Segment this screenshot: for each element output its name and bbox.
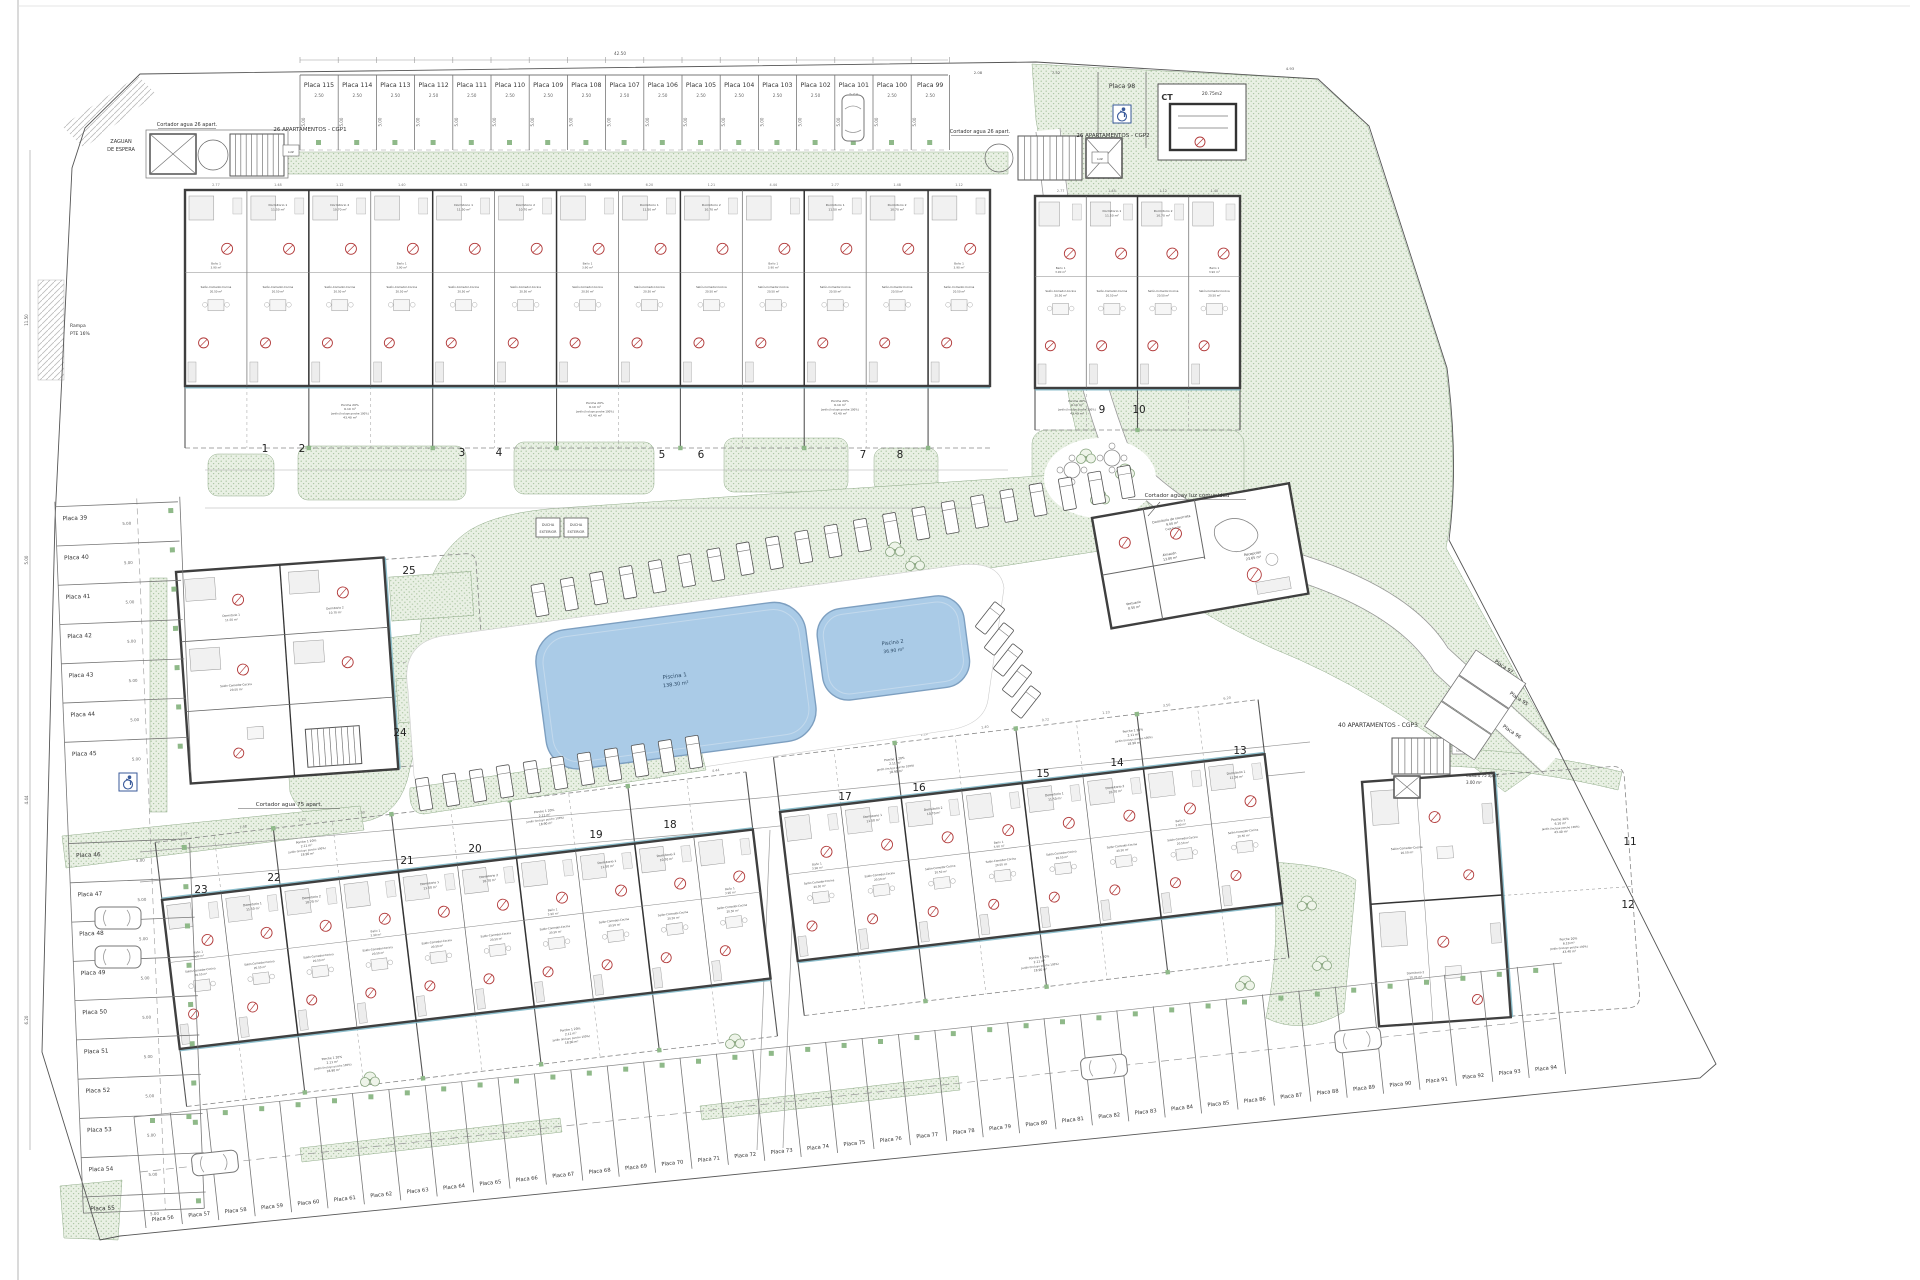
parking-dim: 5.00 <box>759 117 764 126</box>
ct-area-label: 20.75m2 <box>1202 91 1222 97</box>
planter-marker <box>173 626 178 631</box>
pool-2: Piscina 236.90 m² <box>814 593 973 704</box>
wardrobe-furniture <box>563 859 574 876</box>
wardrobe-furniture <box>1226 204 1235 220</box>
garden-label: 43.40 m² <box>1070 412 1084 416</box>
room-label: Salón-Comedor-Cocina <box>820 285 851 289</box>
parking-dim: 5.00 <box>912 117 917 126</box>
parking-spot-label: Placa 104 <box>724 82 754 89</box>
plan-shape <box>1057 467 1063 473</box>
staircase <box>1392 738 1450 774</box>
tree-icon <box>361 1072 380 1087</box>
parking-dim: 2.50 <box>887 93 897 98</box>
plan-shape <box>914 563 916 565</box>
planter-marker <box>550 1075 555 1080</box>
bed-furniture <box>746 196 771 220</box>
planter-marker <box>889 140 894 145</box>
planter-marker <box>842 1043 847 1048</box>
parking-spot-label: Placa 71 <box>698 1156 721 1164</box>
table-furniture <box>332 300 348 311</box>
wardrobe-furniture <box>790 198 799 214</box>
plan-shape <box>734 1041 736 1043</box>
room-label: Salón-Comedor-Cocina <box>634 285 665 289</box>
parking-dim: 5.00 <box>645 117 650 126</box>
garden-label: 18.90 m² <box>301 851 316 857</box>
kitchen-furniture <box>683 362 691 382</box>
planter-marker <box>736 140 741 145</box>
parking-spot-label: Placa 41 <box>66 594 91 601</box>
unit-number: 21 <box>400 855 413 867</box>
gate-planter <box>926 446 930 450</box>
parking-spot-label: Placa 47 <box>78 892 103 899</box>
plan-shape <box>361 1078 370 1087</box>
table-furniture <box>1176 848 1193 861</box>
planter-marker <box>623 1067 628 1072</box>
parking-spot-label: Placa 44 <box>70 712 95 719</box>
parking-dim: 5.00 <box>145 1093 155 1098</box>
dim-label: 1.12 <box>1159 189 1167 193</box>
room-label: Salón-Comedor-Cocina <box>882 285 913 289</box>
parking-dim: 2.50 <box>811 93 821 98</box>
parking-dim: 2.50 <box>658 93 668 98</box>
dim-label: 1.21 <box>708 183 716 187</box>
parking-spot-label: Placa 55 <box>90 1206 115 1213</box>
wardrobe-furniture <box>852 198 861 214</box>
green-garden-patch <box>514 442 654 494</box>
parking-spot-label: Placa 49 <box>81 970 106 977</box>
staircase <box>1018 136 1082 180</box>
parking-dim: 5.00 <box>125 599 135 604</box>
water-cutoff-label: Cortador aguay luz comunidad <box>1145 493 1230 499</box>
car-icon <box>1334 1027 1382 1054</box>
wardrobe-furniture <box>326 887 337 904</box>
text-label: EXTERIOR <box>540 530 558 534</box>
planter-marker <box>660 1063 665 1068</box>
parking-separator <box>57 541 180 546</box>
planter-marker <box>660 140 665 145</box>
garden-wall <box>1258 700 1265 755</box>
parking-dim: 2.50 <box>353 93 363 98</box>
parking-spot-label: Placa 65 <box>479 1179 502 1187</box>
parking-spot-label: Placa 61 <box>334 1195 357 1203</box>
tree-icon <box>1236 976 1255 991</box>
parking-dim: 5.00 <box>130 717 140 722</box>
table-furniture <box>270 300 286 311</box>
plan-shape <box>1502 886 1632 895</box>
room-area: 20.50 m² <box>458 290 470 294</box>
kitchen-furniture <box>1192 364 1200 384</box>
plan-shape <box>726 1040 735 1049</box>
parking-spot-label: Placa 72 <box>734 1152 757 1160</box>
unit-number: 17 <box>838 791 851 803</box>
unit-number: 5 <box>659 449 666 461</box>
table-furniture <box>253 972 270 985</box>
unit-number: 14 <box>1110 757 1124 769</box>
plan-shape <box>95 907 141 929</box>
room-label: Salón-Comedor-Cocina <box>448 285 479 289</box>
table-furniture <box>765 300 781 311</box>
unit-number: 16 <box>912 782 926 794</box>
parking-spot-label: Placa 109 <box>533 82 563 89</box>
planter-marker <box>296 1102 301 1107</box>
text-label: 4.44 <box>24 795 29 804</box>
table-furniture <box>666 923 683 936</box>
planter-marker <box>1315 992 1320 997</box>
parking-dim: 5.00 <box>122 521 132 526</box>
parking-dim: 5.00 <box>683 117 688 126</box>
green-left-band <box>62 806 364 868</box>
plan-shape <box>916 561 925 570</box>
plan-shape <box>128 775 132 779</box>
garden-wall <box>391 814 398 872</box>
room-area: 3.90 m² <box>1055 270 1066 274</box>
parking-spot-label: Placa 68 <box>588 1167 611 1175</box>
room-label: Dormitorio 1 <box>268 203 287 207</box>
garden-divider <box>357 1028 364 1086</box>
bed-furniture <box>375 196 400 220</box>
kitchen-furniture <box>498 362 506 382</box>
room-area: 10.70 m² <box>333 208 347 212</box>
gate-planter <box>307 446 311 450</box>
gate-planter <box>1013 726 1018 731</box>
parking-dim: 5.00 <box>568 117 573 126</box>
bed-furniture <box>785 815 812 842</box>
parking-spot-label: Placa 53 <box>87 1127 112 1134</box>
parking-dim: 5.00 <box>124 560 134 565</box>
room-label: Salón-Comedor-Cocina <box>1097 289 1128 293</box>
garden-label: 43.40 m² <box>588 414 602 418</box>
dim-label: 3.50 <box>584 183 592 187</box>
bed-furniture <box>1193 202 1214 226</box>
wardrobe-furniture <box>914 198 923 214</box>
parking-dim: 2.50 <box>582 93 592 98</box>
garden-divider <box>569 793 576 851</box>
kitchen-furniture <box>436 362 444 382</box>
planter-marker <box>927 140 932 145</box>
garden-divider <box>1076 721 1083 776</box>
dim-label: 6.20 <box>646 183 654 187</box>
dim-label: 4.44 <box>769 183 777 187</box>
table-furniture <box>933 876 950 889</box>
ramp-label: PTE 16% <box>70 331 90 337</box>
green-garden-patch <box>724 438 848 492</box>
room-area: 20.50 m² <box>1157 294 1169 298</box>
planter-marker <box>188 1002 193 1007</box>
plan-shape <box>564 518 588 537</box>
parking-dim: 5.00 <box>144 1054 154 1059</box>
kitchen-furniture <box>1038 364 1046 384</box>
garden-divider <box>1222 910 1229 965</box>
table-furniture <box>994 869 1011 882</box>
gate-planter <box>802 446 806 450</box>
parking-separator <box>55 502 178 507</box>
plan-shape <box>894 549 896 551</box>
table-furniture <box>1206 304 1222 315</box>
parking-spot-label: Placa 73 <box>770 1148 793 1156</box>
parking-spot-label: Placa 64 <box>443 1183 466 1191</box>
gate-planter <box>430 446 434 450</box>
green-garden-patch <box>208 454 274 496</box>
parking-dim: 5.00 <box>148 1172 158 1177</box>
wardrobe-furniture <box>976 198 985 214</box>
parking-spot-label: Placa 83 <box>1134 1108 1157 1116</box>
parking-spot-label: Placa 101 <box>839 82 869 89</box>
parking-spot-label: Placa 78 <box>952 1128 975 1136</box>
parking-dim: 5.00 <box>129 678 139 683</box>
gate-planter <box>389 812 394 817</box>
planter-marker <box>587 1071 592 1076</box>
table-furniture <box>1104 304 1120 315</box>
planter-marker <box>1060 1019 1065 1024</box>
planter-marker <box>168 508 173 513</box>
tree-icon <box>726 1034 745 1049</box>
planter-marker <box>170 547 175 552</box>
wardrobe-furniture <box>681 845 692 862</box>
garden-divider <box>593 1000 600 1058</box>
dim-label: 2.77 <box>831 183 839 187</box>
planter-marker <box>223 1110 228 1115</box>
parking-spot-label: Placa 81 <box>1062 1116 1085 1124</box>
parking-dim: 5.00 <box>874 117 879 126</box>
unit-number: 19 <box>589 829 602 841</box>
kitchen-furniture <box>1482 803 1493 824</box>
parking-spot-label: Placa 52 <box>85 1088 110 1095</box>
room-area: 3.90 m² <box>954 265 965 269</box>
unit-number: 18 <box>663 819 676 831</box>
building-block-c: Baño 13.90 m²Salón-Comedor-Cocina20.50 m… <box>154 765 777 1109</box>
room-area: 20.50 m² <box>829 290 841 294</box>
parking-separator <box>78 1074 201 1079</box>
plan-shape <box>371 1077 380 1086</box>
unit-number: 2 <box>299 443 306 455</box>
table-furniture <box>1155 304 1171 315</box>
room-area: 3.90 m² <box>1209 270 1220 274</box>
planter-marker <box>392 140 397 145</box>
parking-spot-label: Placa 75 <box>843 1140 866 1148</box>
parking-dim: 5.00 <box>607 117 612 126</box>
wardrobe-furniture <box>208 901 219 918</box>
kitchen-furniture <box>250 362 258 382</box>
table-furniture <box>430 951 447 964</box>
drawing-sheet: 42.502.087.524.9311.505.004.446.20Placa … <box>0 0 1920 1280</box>
parking-spot-label: Placa 82 <box>1098 1112 1121 1120</box>
table-furniture <box>641 300 657 311</box>
parking-spot-label: Placa 112 <box>418 82 448 89</box>
dim-label: 1.12 <box>955 183 963 187</box>
text-label: LUZ <box>288 150 294 154</box>
planter-marker <box>514 1079 519 1084</box>
gate-planter <box>1165 970 1170 975</box>
planter-marker <box>259 1106 264 1111</box>
table-furniture <box>194 979 211 992</box>
bed-furniture <box>1379 911 1407 947</box>
dim-label: 1.10 <box>1102 710 1110 715</box>
parking-dim: 5.00 <box>150 1211 160 1216</box>
table-furniture <box>873 884 890 897</box>
planter-marker <box>478 1082 483 1087</box>
garden-label: 18.90 m² <box>539 821 554 827</box>
garden-divider <box>239 1042 246 1100</box>
plan-shape <box>1113 105 1131 123</box>
parking-spot-label: Placa 69 <box>625 1163 648 1171</box>
text-label: LUZ <box>1097 157 1103 161</box>
parking-spot-label: Placa 86 <box>1244 1096 1267 1104</box>
outdoor-shower: DUCHAEXTERIOR <box>536 518 560 537</box>
dim-label: 6.20 <box>1223 696 1231 701</box>
wardrobe-furniture <box>949 799 960 816</box>
parking-spot-label: Placa 39 <box>62 515 87 522</box>
parking-spot-label: Placa 51 <box>84 1049 109 1056</box>
garden-divider <box>711 986 718 1044</box>
plan-shape <box>1236 982 1245 991</box>
garden-wall <box>628 786 635 844</box>
bed-furniture <box>1148 771 1175 798</box>
parking-spot-label: Placa 115 <box>304 82 334 89</box>
green-left-strip <box>150 578 167 812</box>
parking-spot-label: Placa 89 <box>1353 1084 1376 1092</box>
car-icon <box>1080 1054 1128 1081</box>
wardrobe-furniture <box>357 198 366 214</box>
meter-cabinet-label: 3.00 m² <box>1466 780 1482 785</box>
kitchen-furniture <box>188 362 196 382</box>
unit-number: 7 <box>860 449 867 461</box>
planter-marker <box>507 140 512 145</box>
planter-marker <box>878 1039 883 1044</box>
planter-marker <box>171 587 176 592</box>
plan-shape <box>1323 961 1332 970</box>
parking-spot-label: Placa 63 <box>406 1187 429 1195</box>
garden-divider <box>979 939 986 994</box>
parking-spot-label: Placa 50 <box>82 1009 107 1016</box>
parking-spot-label: Placa 79 <box>989 1124 1012 1132</box>
room-area: 20.50 m² <box>581 290 593 294</box>
garden-wall <box>919 946 926 1001</box>
parking-dim: 2.50 <box>773 93 783 98</box>
parking-separator <box>81 1153 204 1158</box>
parking-dim: 2.50 <box>735 93 745 98</box>
text-label: 42.50 <box>614 51 626 56</box>
table-furniture <box>951 300 967 311</box>
plan-shape <box>369 1079 371 1081</box>
planter-marker <box>354 140 359 145</box>
parking-spot-label: Placa 84 <box>1171 1104 1194 1112</box>
plan-shape <box>1109 443 1115 449</box>
plan-shape <box>95 946 141 968</box>
green-top-strip <box>188 152 1008 174</box>
room-area: 11.50 m² <box>271 208 285 212</box>
dim-label: 4.44 <box>712 768 720 773</box>
parking-dim: 2.50 <box>429 93 439 98</box>
parking-spot-label: Placa 105 <box>686 82 716 89</box>
parking-spot-label: Placa 80 <box>1025 1120 1048 1128</box>
plan-shape <box>1087 454 1096 463</box>
dim-label: 0.72 <box>460 183 468 187</box>
room-area: 20.50 m² <box>334 290 346 294</box>
parking-dim: 5.00 <box>416 117 421 126</box>
plan-shape <box>1244 983 1246 985</box>
planter-marker <box>405 1090 410 1095</box>
parking-spot-label: Placa 57 <box>188 1211 211 1219</box>
wardrobe-furniture <box>1009 792 1020 809</box>
unit-number: 4 <box>496 447 503 459</box>
garden-label: 6.10 m² <box>344 407 357 411</box>
dim-label: 1.10 <box>522 183 530 187</box>
ramp-label: Rampa <box>70 323 86 329</box>
room-label: Salón-Comedor-Cocina <box>1045 289 1076 293</box>
kitchen-furniture <box>869 362 877 382</box>
room-label: Salón-Comedor-Cocina <box>263 285 294 289</box>
unit-number: 13 <box>1233 745 1246 757</box>
unit-number: 10 <box>1132 404 1145 416</box>
parking-dim: 5.00 <box>136 857 146 862</box>
parking-spot-label: Placa 62 <box>370 1191 393 1199</box>
unit-number: 12 <box>1621 899 1634 911</box>
wardrobe-furniture <box>481 198 490 214</box>
parking-spot-label: Placa 88 <box>1316 1088 1339 1096</box>
wardrobe-furniture <box>543 198 552 214</box>
table-furniture <box>394 300 410 311</box>
parking-dim: 5.00 <box>137 897 147 902</box>
kitchen-furniture <box>807 362 815 382</box>
wardrobe-furniture <box>888 806 899 823</box>
dim-label: 2.77 <box>212 183 220 187</box>
plan-shape <box>1321 963 1323 965</box>
garden-label: 6.10 m² <box>1071 403 1084 407</box>
parking-spot-label: Placa 102 <box>800 82 830 89</box>
garden-divider <box>955 736 962 791</box>
garden-label: 43.40 m² <box>343 416 357 420</box>
garden-wall <box>771 978 778 1036</box>
planter-marker <box>183 884 188 889</box>
room-label: Salón-Comedor-Cocina <box>696 285 727 289</box>
room-label: Salón-Comedor-Cocina <box>758 285 789 289</box>
plan-shape <box>1077 455 1086 464</box>
wardrobe-furniture <box>728 198 737 214</box>
room-area: 20.50 m² <box>643 290 655 294</box>
parking-spot-label: Placa 45 <box>72 751 97 758</box>
parking-spot-label: Placa 48 <box>79 931 104 938</box>
planter-marker <box>186 1114 191 1119</box>
wardrobe-furniture <box>1072 204 1081 220</box>
plan-shape <box>191 1150 239 1177</box>
garden-label: 18.90 m² <box>1033 967 1048 973</box>
table-furniture <box>703 300 719 311</box>
gate-planter <box>657 1048 662 1053</box>
planter-marker <box>732 1055 737 1060</box>
water-cutoff-label: Cortador agua 75 apart. <box>256 802 323 808</box>
text-label: 6.20 <box>24 1015 29 1024</box>
parking-spot-label: Placa 90 <box>1389 1081 1412 1089</box>
planter-marker <box>174 665 179 670</box>
table-furniture <box>1437 846 1454 859</box>
wardrobe-furniture <box>419 198 428 214</box>
parking-dim: 5.00 <box>132 756 142 761</box>
parking-spot-label: Placa 94 <box>1535 1065 1558 1073</box>
wardrobe-furniture <box>622 852 633 869</box>
planter-marker <box>191 1080 196 1085</box>
planter-marker <box>1388 984 1393 989</box>
room-label: Dormitorio 1 <box>454 203 473 207</box>
garden-label: 43.40 m² <box>1554 829 1569 834</box>
kitchen-furniture <box>560 362 568 382</box>
plan-shape <box>1081 467 1087 473</box>
plan-shape <box>886 548 895 557</box>
room-label: Dormitorio 2 <box>888 203 907 207</box>
site-plan-drawing: 42.502.087.524.9311.505.004.446.20Placa … <box>0 0 1920 1280</box>
room-label: Dormitorio 1 <box>826 203 845 207</box>
planter-marker <box>774 140 779 145</box>
parking-dim: 5.00 <box>147 1132 157 1137</box>
